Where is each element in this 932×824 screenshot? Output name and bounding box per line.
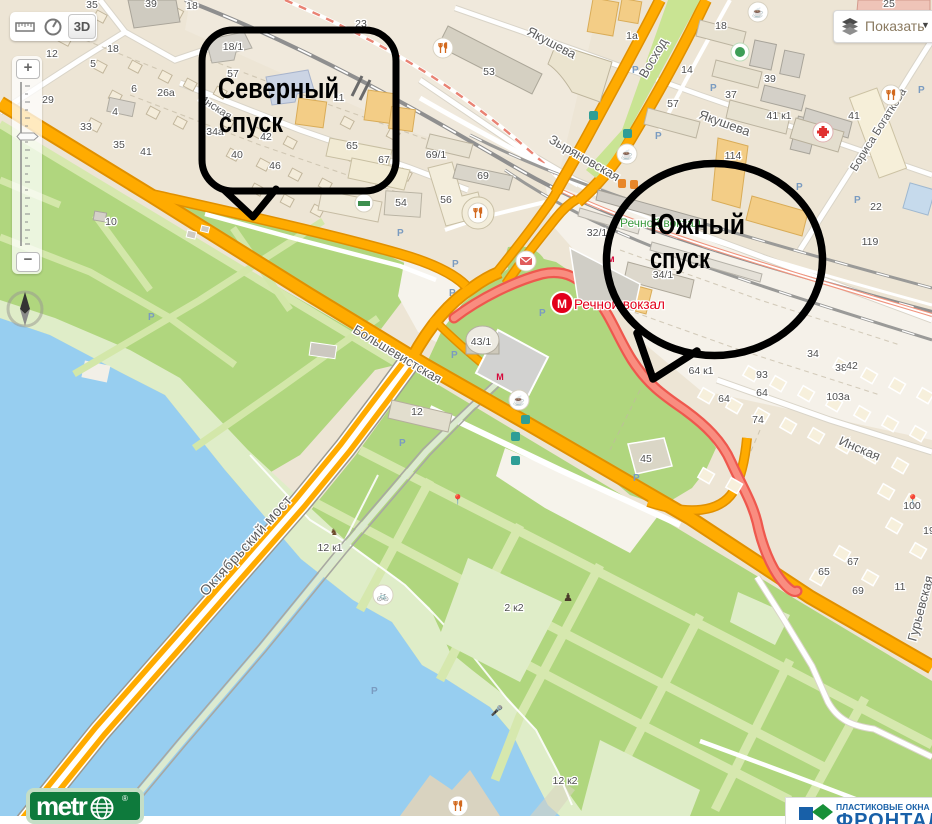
svg-text:67: 67 <box>378 154 390 166</box>
svg-text:42: 42 <box>846 360 858 372</box>
svg-text:12: 12 <box>411 406 423 418</box>
svg-text:P: P <box>655 131 662 142</box>
svg-text:🚲: 🚲 <box>377 591 389 602</box>
svg-text:22: 22 <box>870 201 882 213</box>
svg-text:М: М <box>496 372 504 382</box>
svg-text:📍: 📍 <box>907 493 919 506</box>
svg-text:56: 56 <box>440 194 452 206</box>
svg-text:4: 4 <box>112 106 118 118</box>
svg-text:12: 12 <box>46 48 58 60</box>
svg-text:18: 18 <box>186 0 198 12</box>
svg-text:19: 19 <box>923 525 932 537</box>
svg-text:40: 40 <box>231 149 243 161</box>
svg-text:М: М <box>557 297 567 311</box>
svg-text:41 к1: 41 к1 <box>766 110 791 122</box>
svg-text:57: 57 <box>667 98 679 110</box>
svg-text:P: P <box>449 288 456 299</box>
svg-text:25: 25 <box>883 0 895 10</box>
svg-text:P: P <box>918 85 925 96</box>
svg-text:P: P <box>397 228 404 239</box>
svg-text:14: 14 <box>681 64 693 76</box>
svg-text:📍: 📍 <box>452 493 464 506</box>
svg-text:67: 67 <box>847 556 859 568</box>
svg-text:P: P <box>710 83 717 94</box>
svg-text:32/1: 32/1 <box>587 227 608 239</box>
svg-text:5: 5 <box>90 58 96 70</box>
svg-text:Южный: Южный <box>650 209 745 241</box>
svg-text:64: 64 <box>756 387 768 399</box>
svg-text:64: 64 <box>718 393 730 405</box>
svg-text:P: P <box>371 686 378 697</box>
svg-text:64 к1: 64 к1 <box>688 365 713 377</box>
svg-text:1а: 1а <box>626 30 638 42</box>
svg-text:🎤: 🎤 <box>491 704 504 717</box>
svg-text:6: 6 <box>131 83 137 95</box>
svg-text:10: 10 <box>105 216 117 228</box>
svg-text:спуск: спуск <box>219 107 283 139</box>
svg-text:☕: ☕ <box>752 6 764 19</box>
svg-text:Северный: Северный <box>218 73 339 105</box>
svg-text:53: 53 <box>483 66 495 78</box>
svg-text:65: 65 <box>818 566 830 578</box>
svg-text:☕: ☕ <box>621 148 633 161</box>
svg-text:41: 41 <box>140 146 152 158</box>
svg-text:P: P <box>148 312 155 323</box>
svg-text:P: P <box>452 259 459 270</box>
svg-text:35: 35 <box>113 139 125 151</box>
svg-text:18: 18 <box>107 43 119 55</box>
svg-text:12 к1: 12 к1 <box>317 542 342 554</box>
svg-text:119: 119 <box>862 236 879 248</box>
svg-text:☕: ☕ <box>513 394 525 407</box>
svg-text:спуск: спуск <box>650 243 710 275</box>
svg-text:45: 45 <box>640 453 652 465</box>
svg-text:♟: ♟ <box>563 592 573 604</box>
svg-text:74: 74 <box>752 414 764 426</box>
svg-text:41: 41 <box>848 110 860 122</box>
svg-text:P: P <box>399 438 406 449</box>
svg-text:39: 39 <box>764 73 776 85</box>
svg-text:69: 69 <box>852 585 864 597</box>
svg-text:11: 11 <box>895 581 906 593</box>
svg-text:18/1: 18/1 <box>223 41 244 53</box>
svg-text:12 к2: 12 к2 <box>552 775 577 787</box>
svg-text:103а: 103а <box>826 391 850 403</box>
svg-text:34: 34 <box>807 348 819 360</box>
svg-text:93: 93 <box>756 369 768 381</box>
svg-text:39: 39 <box>145 0 157 10</box>
svg-text:18: 18 <box>715 20 727 32</box>
svg-text:P: P <box>854 195 861 206</box>
svg-text:26а: 26а <box>157 87 175 99</box>
svg-text:46: 46 <box>269 160 281 172</box>
svg-text:P: P <box>451 350 458 361</box>
svg-text:29: 29 <box>42 94 54 106</box>
svg-text:P: P <box>633 473 640 484</box>
svg-text:69: 69 <box>477 170 489 182</box>
svg-text:43/1: 43/1 <box>471 336 492 348</box>
svg-text:33: 33 <box>80 121 92 133</box>
svg-text:65: 65 <box>346 140 358 152</box>
svg-text:69/1: 69/1 <box>426 149 447 161</box>
svg-text:♞: ♞ <box>330 527 338 537</box>
svg-text:37: 37 <box>725 89 737 101</box>
svg-text:P: P <box>632 65 639 76</box>
svg-text:35: 35 <box>86 0 98 11</box>
svg-text:P: P <box>796 182 803 193</box>
svg-text:54: 54 <box>395 197 407 209</box>
svg-text:114: 114 <box>725 150 742 162</box>
svg-text:P: P <box>539 308 546 319</box>
svg-text:2 к2: 2 к2 <box>504 602 523 614</box>
